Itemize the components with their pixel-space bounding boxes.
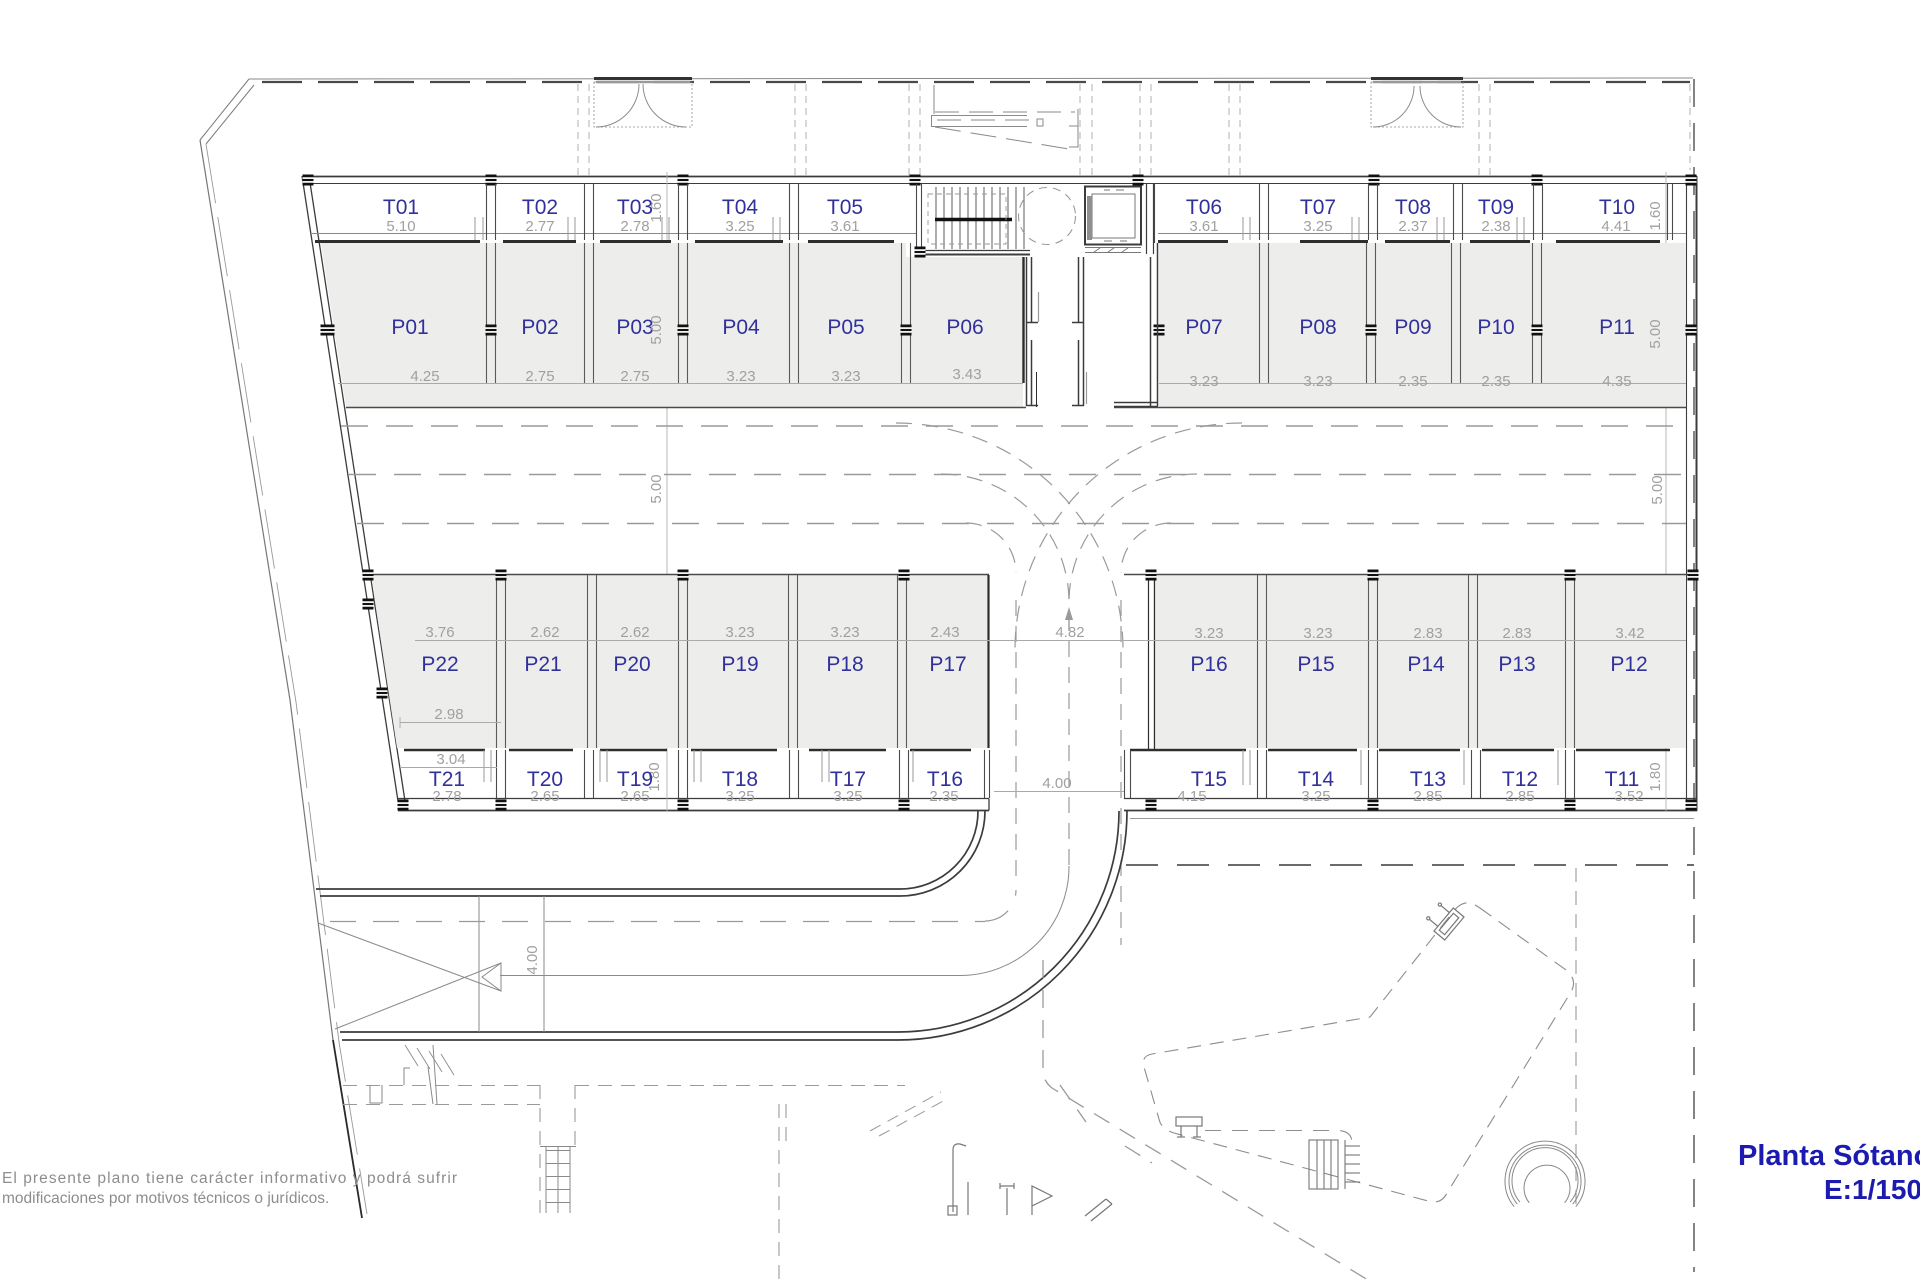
svg-text:3.25: 3.25 <box>725 788 754 805</box>
svg-text:P08: P08 <box>1299 316 1336 339</box>
svg-text:T09: T09 <box>1478 196 1514 219</box>
svg-text:4.41: 4.41 <box>1601 218 1630 235</box>
svg-text:2.98: 2.98 <box>434 706 463 723</box>
svg-text:2.83: 2.83 <box>1502 625 1531 642</box>
svg-text:P16: P16 <box>1190 653 1227 676</box>
svg-text:P10: P10 <box>1477 316 1514 339</box>
svg-text:2.85: 2.85 <box>1413 788 1442 805</box>
svg-text:E:1/150: E:1/150 <box>1824 1174 1920 1205</box>
svg-text:P05: P05 <box>827 316 864 339</box>
svg-text:P18: P18 <box>826 653 863 676</box>
svg-text:P06: P06 <box>946 316 983 339</box>
svg-text:T10: T10 <box>1599 196 1635 219</box>
svg-text:2.83: 2.83 <box>1413 625 1442 642</box>
svg-text:2.78: 2.78 <box>432 788 461 805</box>
svg-text:T08: T08 <box>1395 196 1431 219</box>
svg-text:T02: T02 <box>522 196 558 219</box>
svg-text:T01: T01 <box>383 196 419 219</box>
svg-text:P19: P19 <box>721 653 758 676</box>
svg-text:P04: P04 <box>722 316 760 339</box>
svg-text:P11: P11 <box>1599 316 1635 339</box>
svg-text:2.35: 2.35 <box>1398 373 1427 390</box>
svg-text:2.38: 2.38 <box>1481 218 1510 235</box>
svg-text:2.43: 2.43 <box>930 624 959 641</box>
svg-text:3.23: 3.23 <box>831 368 860 385</box>
svg-text:P12: P12 <box>1610 653 1647 676</box>
svg-text:T04: T04 <box>722 196 759 219</box>
svg-text:5.00: 5.00 <box>648 315 665 344</box>
svg-text:3.23: 3.23 <box>1303 625 1332 642</box>
svg-text:3.52: 3.52 <box>1614 788 1643 805</box>
svg-text:1.60: 1.60 <box>1647 201 1664 230</box>
svg-text:T05: T05 <box>827 196 863 219</box>
svg-text:3.25: 3.25 <box>1301 788 1330 805</box>
svg-text:3.42: 3.42 <box>1615 625 1644 642</box>
svg-text:3.23: 3.23 <box>830 624 859 641</box>
svg-text:P15: P15 <box>1297 653 1334 676</box>
svg-text:5.10: 5.10 <box>386 218 415 235</box>
svg-text:5.00: 5.00 <box>1647 319 1664 348</box>
svg-text:3.61: 3.61 <box>830 218 859 235</box>
svg-text:3.25: 3.25 <box>725 218 754 235</box>
svg-text:2.75: 2.75 <box>525 368 554 385</box>
svg-text:1.60: 1.60 <box>648 193 665 222</box>
svg-text:2.35: 2.35 <box>1481 373 1510 390</box>
svg-text:P13: P13 <box>1498 653 1535 676</box>
svg-text:2.65: 2.65 <box>620 788 649 805</box>
svg-text:3.23: 3.23 <box>1189 373 1218 390</box>
svg-text:3.23: 3.23 <box>726 368 755 385</box>
svg-text:El presente plano tiene caráct: El presente plano tiene carácter informa… <box>2 1170 457 1187</box>
svg-text:1.80: 1.80 <box>1647 762 1664 791</box>
svg-text:2.78: 2.78 <box>620 218 649 235</box>
svg-text:2.62: 2.62 <box>620 624 649 641</box>
svg-text:3.23: 3.23 <box>1194 625 1223 642</box>
svg-text:P01: P01 <box>391 316 428 339</box>
svg-text:T06: T06 <box>1186 196 1222 219</box>
svg-text:T07: T07 <box>1300 196 1336 219</box>
svg-text:P02: P02 <box>521 316 558 339</box>
svg-text:3.23: 3.23 <box>725 624 754 641</box>
svg-text:3.25: 3.25 <box>833 788 862 805</box>
svg-text:4.35: 4.35 <box>1602 373 1631 390</box>
svg-text:P14: P14 <box>1407 653 1445 676</box>
svg-text:2.35: 2.35 <box>929 788 958 805</box>
svg-text:P09: P09 <box>1394 316 1431 339</box>
svg-text:5.00: 5.00 <box>1649 475 1666 504</box>
svg-text:4.00: 4.00 <box>524 945 541 974</box>
svg-text:2.75: 2.75 <box>620 368 649 385</box>
svg-text:3.76: 3.76 <box>425 624 454 641</box>
svg-text:modificaciones por motivos téc: modificaciones por motivos técnicos o ju… <box>2 1190 329 1207</box>
svg-text:3.04: 3.04 <box>436 751 465 768</box>
svg-text:Planta Sótano: Planta Sótano <box>1738 1140 1920 1172</box>
svg-text:4.82: 4.82 <box>1055 624 1084 641</box>
svg-text:5.00: 5.00 <box>648 474 665 503</box>
svg-text:P07: P07 <box>1185 316 1222 339</box>
svg-text:2.37: 2.37 <box>1398 218 1427 235</box>
svg-text:2.62: 2.62 <box>530 624 559 641</box>
svg-text:4.00: 4.00 <box>1042 775 1071 792</box>
svg-text:4.15: 4.15 <box>1177 788 1206 805</box>
svg-text:P17: P17 <box>929 653 966 676</box>
svg-text:P22: P22 <box>421 653 458 676</box>
svg-text:P21: P21 <box>524 653 561 676</box>
svg-text:2.65: 2.65 <box>530 788 559 805</box>
svg-text:2.77: 2.77 <box>525 218 554 235</box>
svg-text:3.43: 3.43 <box>952 366 981 383</box>
svg-text:2.85: 2.85 <box>1505 788 1534 805</box>
svg-text:4.25: 4.25 <box>410 368 439 385</box>
svg-text:3.61: 3.61 <box>1189 218 1218 235</box>
svg-text:P20: P20 <box>613 653 650 676</box>
svg-text:3.25: 3.25 <box>1303 218 1332 235</box>
svg-text:3.23: 3.23 <box>1303 373 1332 390</box>
